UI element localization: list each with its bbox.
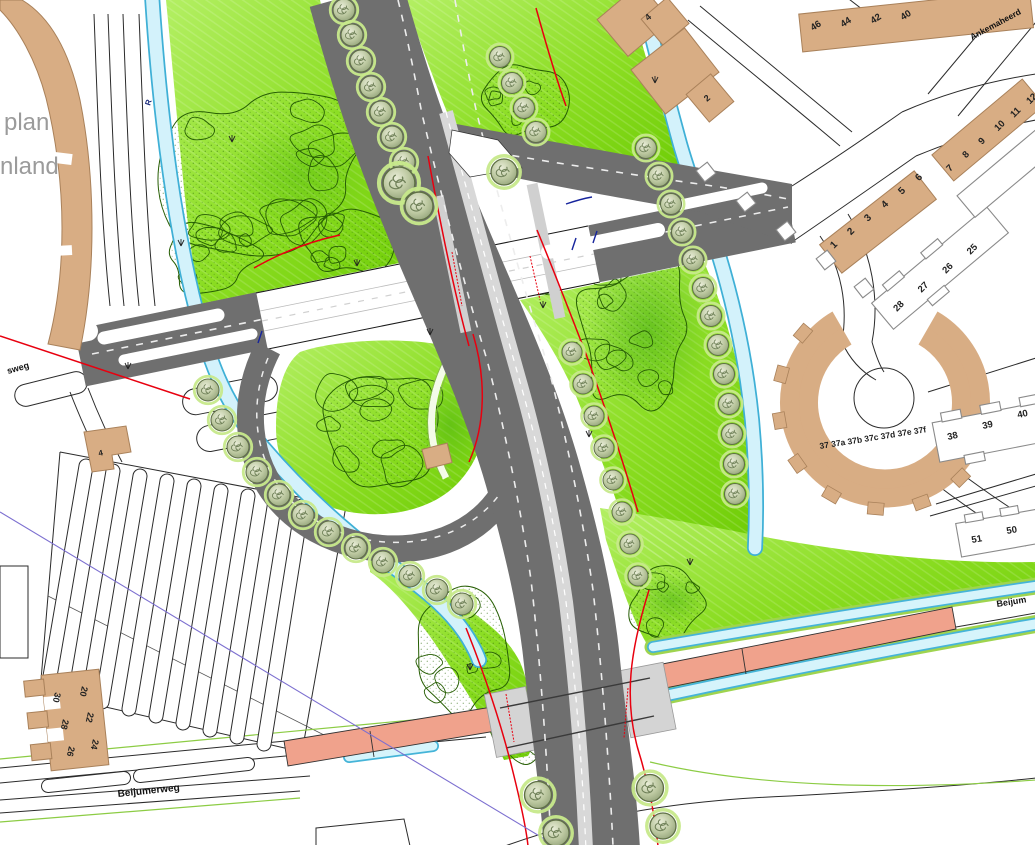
tree-icon: [208, 406, 236, 434]
building-50-51: [954, 502, 1035, 557]
building-west-edge: [0, 566, 28, 658]
tree-icon: [571, 372, 596, 397]
tree-icon: [523, 119, 549, 145]
building-1-6: [820, 171, 937, 273]
street-line: [94, 14, 110, 306]
tree-icon: [369, 548, 397, 576]
tree-icon: [289, 501, 317, 529]
tree-icon: [601, 468, 626, 493]
house-number-37-row: 37 37a 37b 37c 37d 37e 37f: [819, 424, 927, 451]
tree-icon: [646, 163, 672, 189]
tree-icon: [315, 518, 343, 546]
tree-icon: [448, 590, 476, 618]
tree-icon: [487, 44, 513, 70]
tree-icon: [488, 156, 521, 189]
tree-icon: [338, 21, 366, 49]
tree-icon: [582, 404, 607, 429]
tree-icon: [592, 436, 617, 461]
tree-icon: [560, 340, 585, 365]
tree-icon: [357, 73, 385, 101]
house-number: 39: [981, 419, 994, 432]
tree-icon: [658, 191, 684, 217]
site-plan-map: plan nland sweg Beijumerweg Beijum Ankem…: [0, 0, 1035, 845]
tree-icon: [647, 810, 680, 843]
tree-icon: [347, 47, 375, 75]
tree-icon: [669, 219, 695, 245]
tree-icon: [224, 433, 252, 461]
tree-icon: [378, 123, 406, 151]
area-label-partial: plan: [4, 109, 49, 136]
tree-icon: [342, 534, 370, 562]
house-number: 50: [1006, 524, 1018, 537]
street-label-beijumerweg: Beijumerweg: [117, 783, 180, 800]
tree-icon: [690, 275, 716, 301]
tree-icon: [722, 481, 748, 507]
tree-icon: [716, 391, 742, 417]
house-number: 40: [1016, 408, 1029, 421]
street-label-sweg: sweg: [6, 360, 30, 376]
verge-island: [48, 778, 124, 786]
tree-icon: [618, 532, 643, 557]
tree-icon: [633, 771, 667, 805]
tree-icon: [265, 481, 293, 509]
tree-icon: [194, 376, 222, 404]
tree-icon: [698, 303, 724, 329]
verge-island: [140, 764, 248, 776]
tree-icon: [396, 562, 424, 590]
tree-icon: [633, 135, 659, 161]
tree-icon: [721, 451, 747, 477]
tree-icon: [521, 778, 555, 812]
gear-tooth: [867, 502, 884, 515]
tree-icon: [680, 247, 706, 273]
tree-icon: [243, 458, 271, 486]
tree-icon: [705, 332, 731, 358]
street-line: [123, 14, 139, 306]
tree-icon: [499, 70, 525, 96]
tree-icon: [402, 189, 437, 224]
building-bottom-center: [316, 819, 410, 845]
house-number: 38: [946, 430, 959, 443]
tree-icon: [511, 95, 537, 121]
tree-icon: [711, 361, 737, 387]
tree-icon: [719, 421, 745, 447]
tree-icon: [367, 98, 395, 126]
street-line: [108, 14, 124, 306]
building-4-west: [84, 426, 131, 472]
area-label-partial: nland: [0, 153, 59, 180]
tree-icon: [626, 564, 651, 589]
water-label-r: R: [143, 98, 153, 106]
gear-tooth: [772, 412, 787, 430]
tree-icon: [423, 576, 451, 604]
tree-icon: [610, 500, 635, 525]
